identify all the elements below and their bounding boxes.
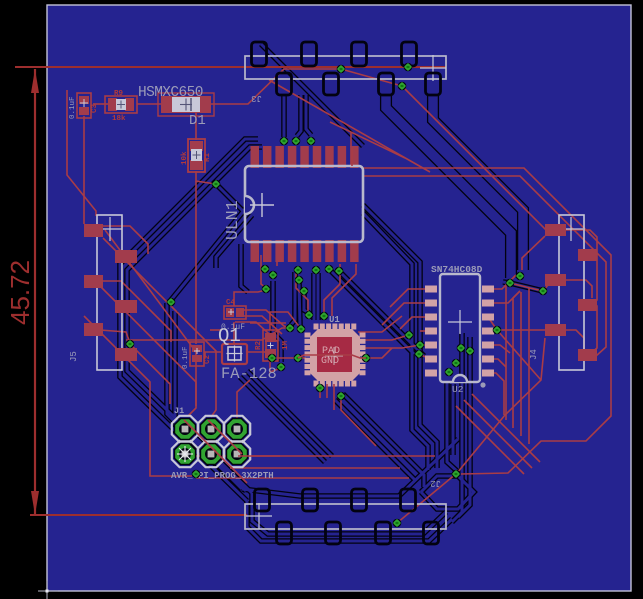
svg-text:10k: 10k [181,151,189,165]
svg-text:C4: C4 [226,299,236,307]
svg-text:U1: U1 [329,315,340,325]
svg-text:J5: J5 [69,351,79,362]
svg-text:U2: U2 [452,384,464,395]
svg-text:R9: R9 [114,90,124,98]
svg-text:45.72: 45.72 [5,260,35,325]
svg-text:FA-128: FA-128 [221,365,277,383]
svg-text:ULN1: ULN1 [223,200,242,240]
svg-text:AVR_SPI_PROG_3X2PTH: AVR_SPI_PROG_3X2PTH [171,471,274,481]
svg-text:18k: 18k [112,115,126,123]
svg-text:R1: R1 [204,152,212,162]
svg-text:C2: C2 [204,354,212,364]
svg-text:C3: C3 [91,103,99,113]
svg-text:D1: D1 [189,113,206,129]
svg-text:J4: J4 [529,349,539,360]
svg-text:0.1uF: 0.1uF [69,96,77,119]
svg-text:J1: J1 [174,406,184,416]
svg-text:0.1uF: 0.1uF [182,346,190,369]
svg-text:HSMXC650: HSMXC650 [138,85,203,101]
svg-text:0.1uF: 0.1uF [221,323,245,332]
svg-text:J3: J3 [251,93,262,103]
svg-text:GND: GND [321,356,339,367]
svg-text:J2: J2 [430,478,441,488]
svg-text:R2: R2 [255,340,263,350]
svg-text:SN74HC08D: SN74HC08D [431,264,483,275]
svg-text:1M: 1M [282,340,290,350]
